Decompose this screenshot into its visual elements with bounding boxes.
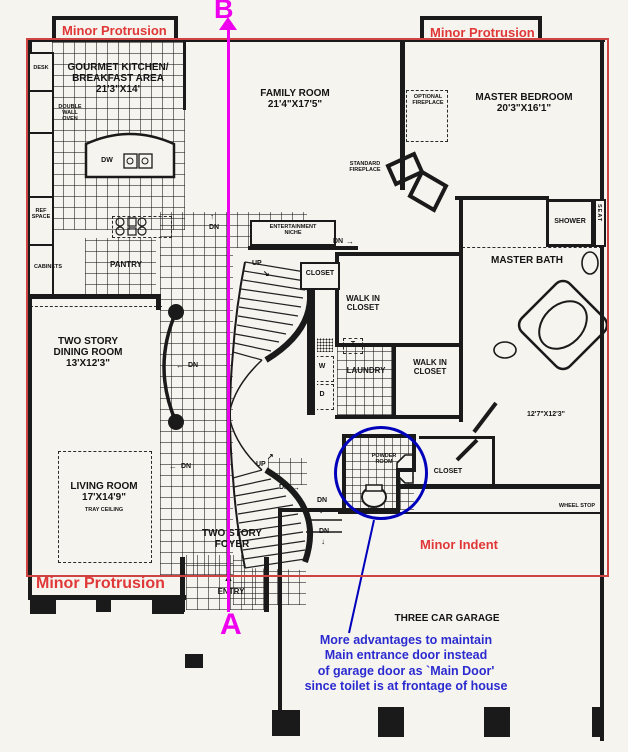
powder-room-highlight-circle <box>334 426 428 520</box>
protrusion-label-top-right: Minor Protrusion <box>430 25 535 40</box>
entry-label: ENTRY <box>218 588 245 597</box>
annotation-note: More advantages to maintain Main entranc… <box>290 633 522 694</box>
garage-pillar-4 <box>592 707 604 737</box>
boundary-outline <box>26 38 609 577</box>
porch-pillar-a <box>30 600 56 614</box>
garage-pillar-1 <box>272 710 300 736</box>
yard-column <box>185 654 203 668</box>
garage-pillar-2 <box>378 707 404 737</box>
protrusion-label-bottom-left: Minor Protrusion <box>36 575 165 593</box>
floor-plan-scan: GOURMET KITCHEN/ BREAKFAST AREA 21'3"X14… <box>0 0 628 752</box>
minor-indent-label: Minor Indent <box>420 537 498 552</box>
section-label-bottom: A <box>220 608 242 642</box>
section-label-top: B <box>214 0 234 25</box>
garage-label: THREE CAR GARAGE <box>394 613 499 624</box>
porch-pillar-b <box>96 600 111 612</box>
section-line <box>227 30 230 612</box>
garage-pillar-3 <box>484 707 510 737</box>
protrusion-label-top-left: Minor Protrusion <box>62 23 167 38</box>
